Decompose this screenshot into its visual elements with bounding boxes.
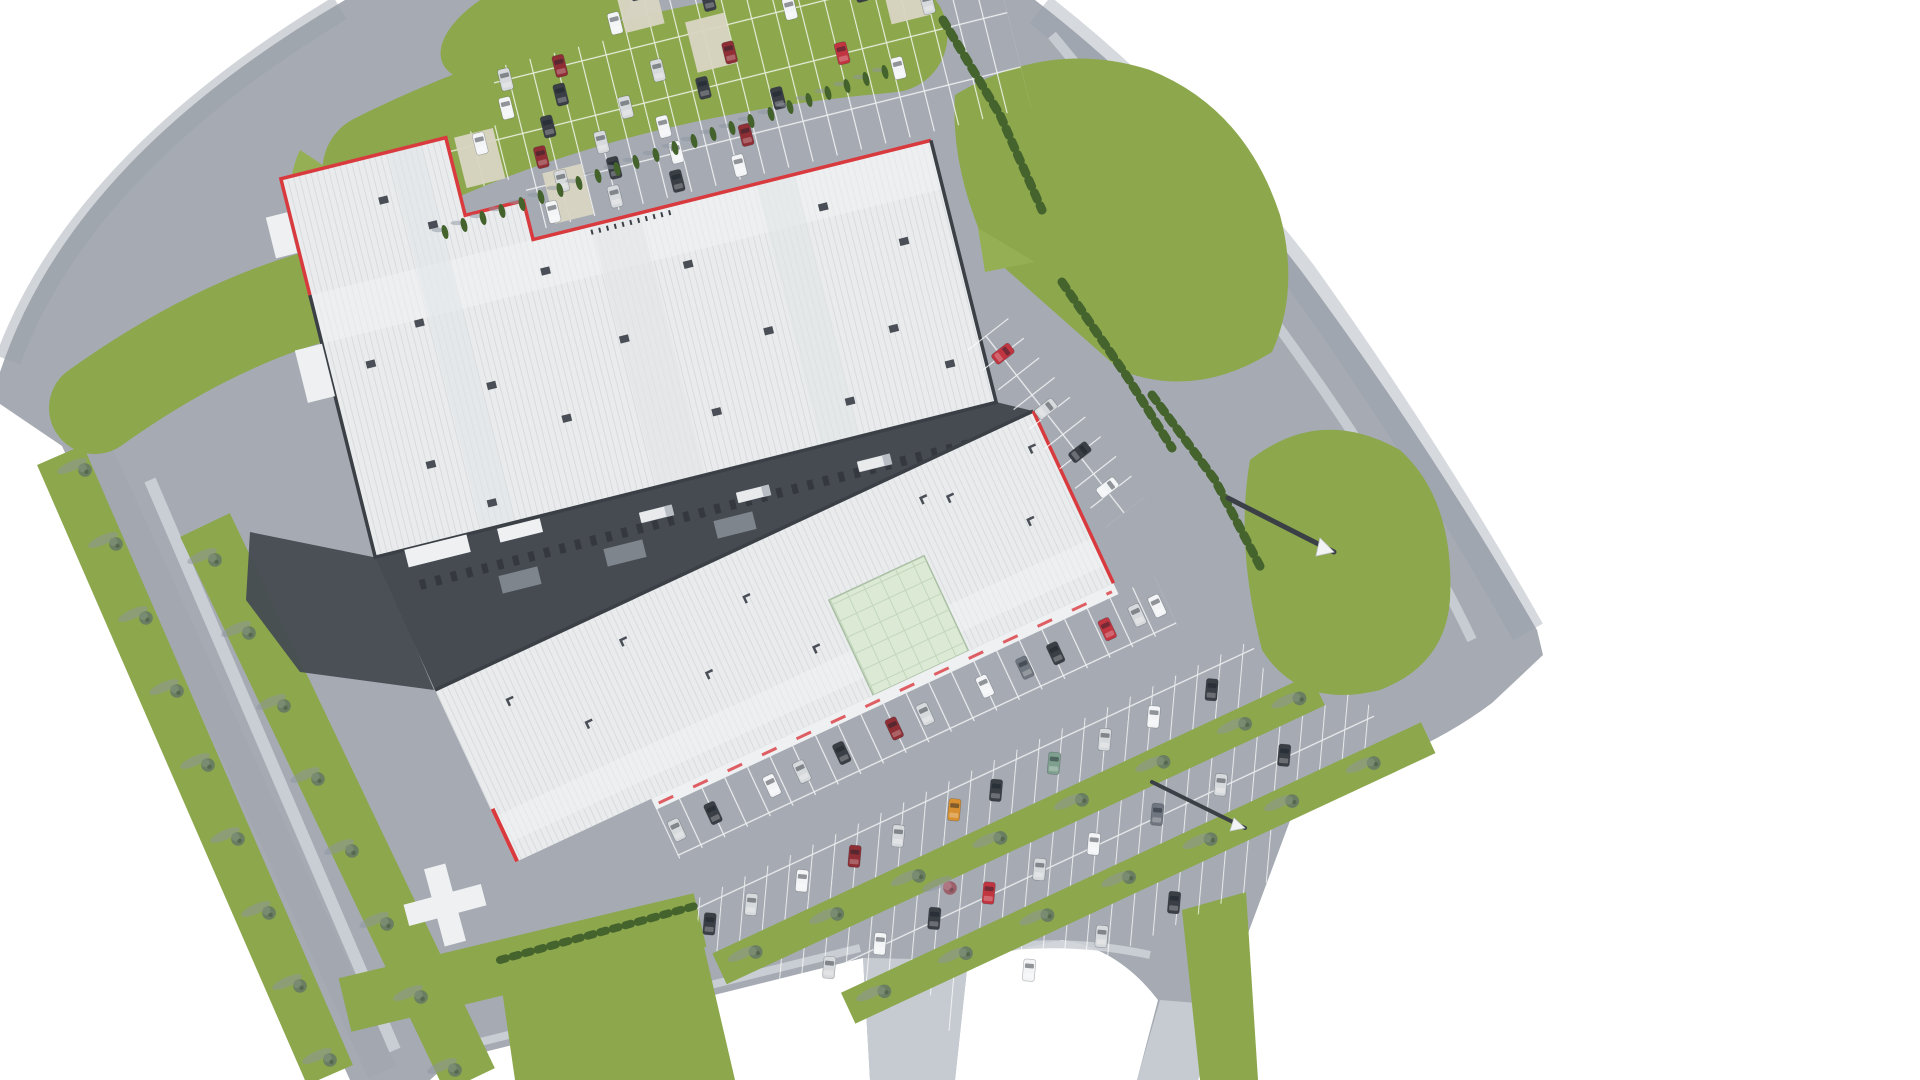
car [848,845,862,868]
car-roof-shine [1148,719,1157,725]
car-body [947,798,961,821]
car [822,956,836,979]
car-roof-shine [991,793,1000,799]
car [703,912,717,935]
car-body [1277,744,1291,767]
car-roof-shine [1169,905,1178,911]
car-windshield [1035,862,1044,867]
car [1214,773,1228,796]
tree-canopy-core [145,618,149,622]
tree-canopy-core [317,779,321,783]
car-windshield [1050,756,1059,761]
car-windshield [1025,963,1034,968]
car-windshield [747,898,756,903]
car [1277,744,1291,767]
car [1022,959,1036,982]
site-plan-rendering [0,0,1920,1080]
car-body [703,912,717,935]
car [1047,752,1061,775]
car-windshield [798,874,807,879]
car [795,869,809,892]
car-body [795,869,809,892]
car-windshield [1097,930,1106,935]
car-body [848,845,862,868]
page-canvas [0,0,1920,1080]
car-roof-shine [1279,758,1288,764]
car-body [1087,833,1101,856]
car [744,893,758,916]
car-windshield [705,917,714,922]
car-roof-shine [949,812,958,818]
car-roof-shine [1024,973,1033,979]
car-windshield [850,849,859,854]
car-body [1205,678,1219,701]
car-windshield [1207,683,1216,688]
tree-canopy-core [299,986,303,990]
car-roof-shine [797,883,806,889]
car [989,779,1003,802]
tree-canopy-core [386,924,390,928]
car-windshield [894,829,903,834]
car-roof-shine [704,926,713,932]
car-roof-shine [1100,742,1109,748]
car [1147,705,1161,728]
car-windshield [930,912,939,917]
car-windshield [950,803,959,808]
car-roof-shine [875,946,884,952]
car-windshield [984,886,993,891]
tree-canopy-core [176,691,180,695]
car-windshield [1216,778,1225,783]
car-windshield [825,961,834,966]
car [1087,833,1101,856]
car [1098,728,1112,751]
car-roof-shine [1096,939,1105,945]
car-roof-shine [824,970,833,976]
tree-canopy-core [329,1060,333,1064]
tree-canopy-core [454,1070,458,1074]
car-windshield [1170,896,1179,901]
car-body [744,893,758,916]
car-body [1047,752,1061,775]
car-body [891,824,905,847]
tree-canopy-core [237,839,241,843]
tree-canopy-core [214,560,218,564]
car [1150,803,1164,826]
car-body [989,779,1003,802]
tree-canopy-core [268,913,272,917]
car-windshield [876,937,885,942]
car [1095,925,1109,948]
car-body [982,882,996,905]
car-windshield [1153,808,1162,813]
car [1032,858,1046,881]
car-windshield [1090,837,1099,842]
tree-canopy-core [84,470,88,474]
car-roof-shine [893,839,902,845]
car-body [1150,803,1164,826]
tree-canopy-core [283,706,287,710]
car-roof-shine [1152,817,1161,823]
car-body [1214,773,1228,796]
car-body [1098,728,1112,751]
car [982,882,996,905]
car-windshield [1100,733,1109,738]
car-roof-shine [1049,766,1058,772]
car-body [1147,705,1161,728]
car-windshield [992,783,1001,788]
car-body [1032,858,1046,881]
car [927,907,941,930]
tree-canopy-core [115,544,119,548]
car-roof-shine [1034,872,1043,878]
car-roof-shine [983,896,992,902]
car-roof-shine [1206,692,1215,698]
car-roof-shine [849,859,858,865]
car-roof-shine [746,907,755,913]
car [1205,678,1219,701]
car-body [822,956,836,979]
tree-canopy-core [420,997,424,1001]
car-windshield [1280,748,1289,753]
car-body [1167,891,1181,914]
car [947,798,961,821]
car [873,932,887,955]
car-body [1022,959,1036,982]
tree-canopy-core [949,888,953,892]
car-body [927,907,941,930]
car [891,824,905,847]
car-roof-shine [929,921,938,927]
tree-canopy-core [207,765,211,769]
tree-canopy-core [248,633,252,637]
car-body [873,932,887,955]
tree-canopy-core [351,851,355,855]
car [1167,891,1181,914]
car-windshield [1149,710,1158,715]
car-roof-shine [1089,847,1098,853]
car-body [1095,925,1109,948]
car-roof-shine [1216,787,1225,793]
